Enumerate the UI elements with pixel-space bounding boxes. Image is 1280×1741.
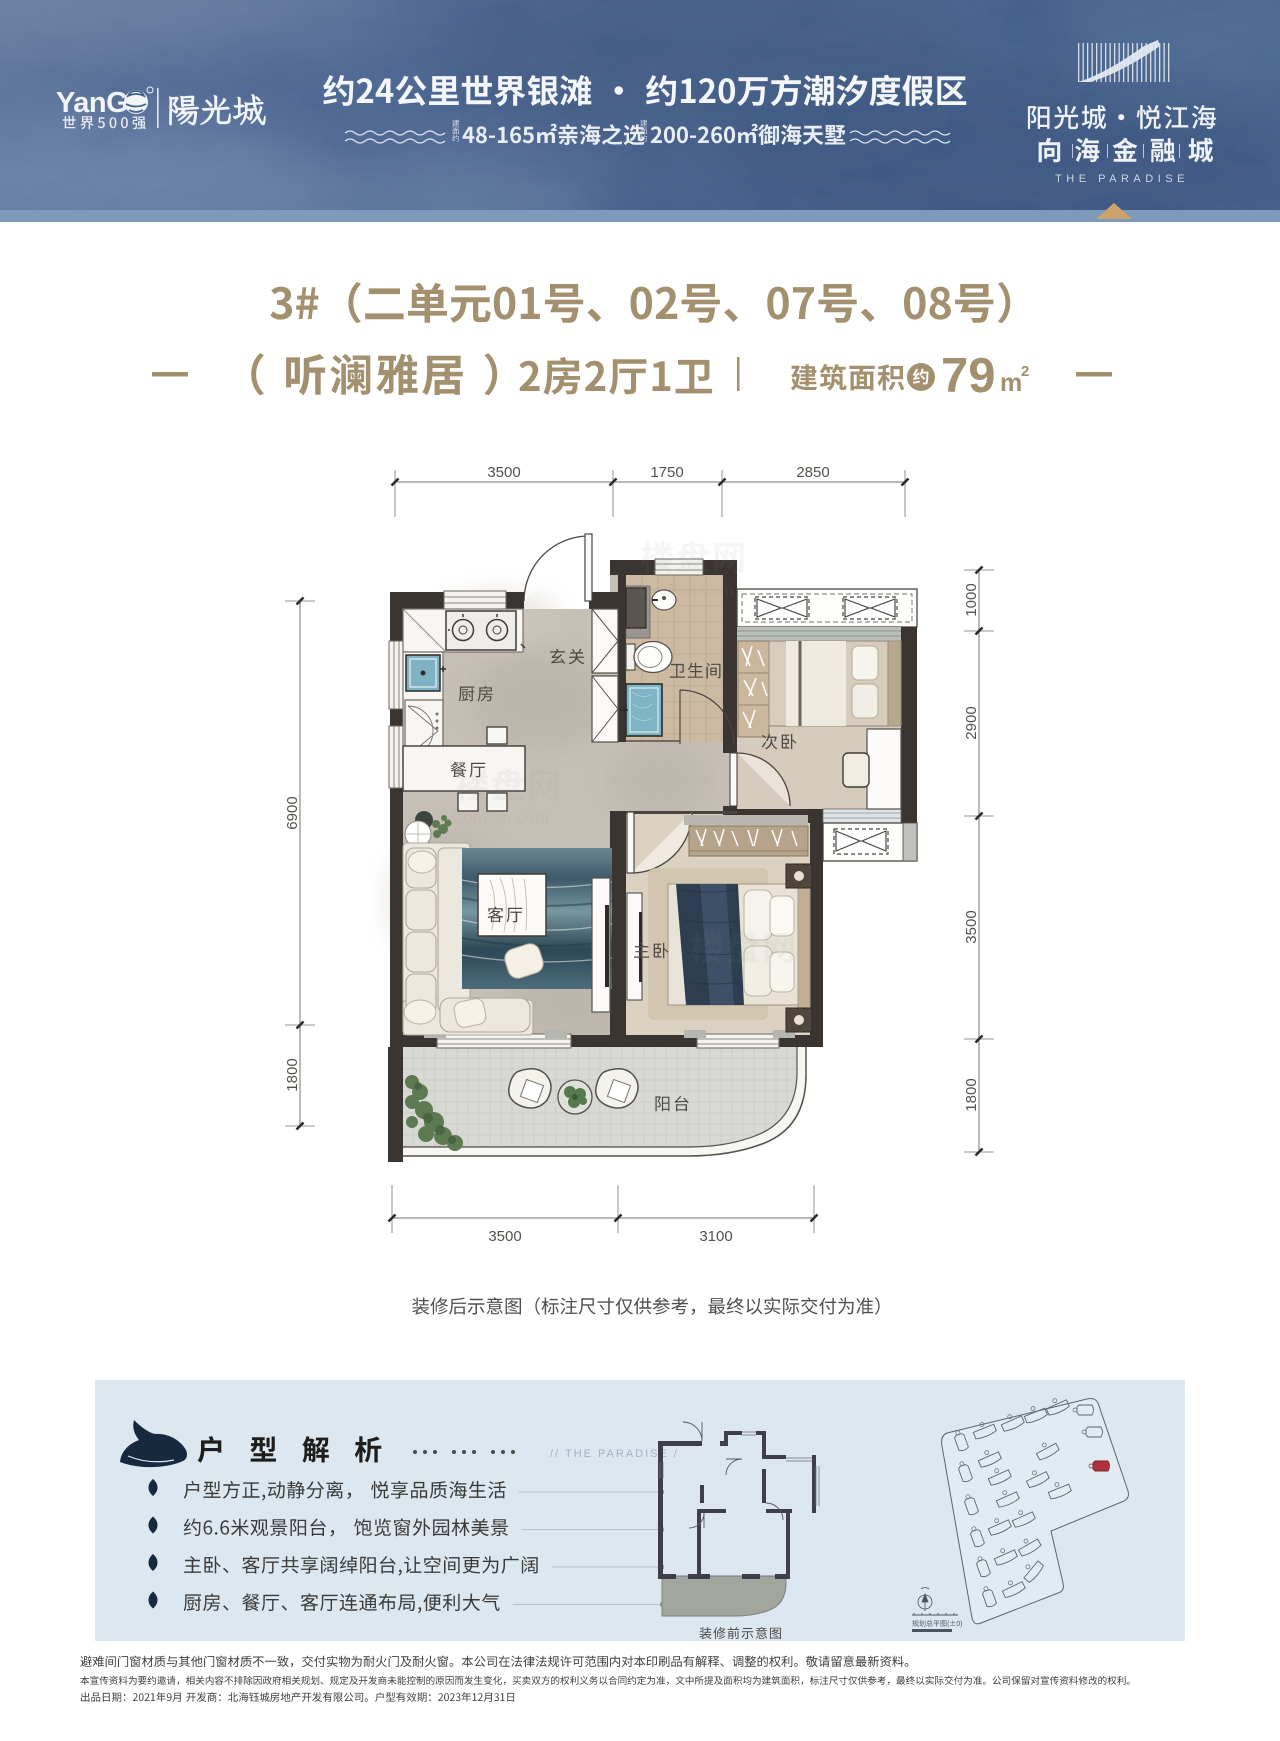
svg-text:2900: 2900 (963, 706, 980, 739)
svg-text:2850: 2850 (796, 464, 829, 481)
svg-text:LouPan.com: LouPan.com (638, 582, 734, 599)
svg-text:1750: 1750 (650, 464, 683, 481)
svg-text:1800: 1800 (963, 1078, 980, 1111)
svg-text:1000: 1000 (963, 583, 980, 616)
svg-text:79: 79 (941, 349, 996, 403)
svg-text:3500: 3500 (963, 910, 980, 943)
svg-text:6900: 6900 (284, 796, 301, 829)
svg-text:THE PARADISE: THE PARADISE (1055, 173, 1189, 185)
svg-text:3500: 3500 (488, 1228, 521, 1245)
svg-text:1800: 1800 (284, 1058, 301, 1091)
svg-text:3100: 3100 (699, 1228, 732, 1245)
svg-text:2: 2 (1021, 363, 1029, 380)
svg-text:LouPan.com: LouPan.com (453, 810, 549, 827)
svg-text:3500: 3500 (487, 464, 520, 481)
svg-text:m: m (1000, 369, 1022, 397)
svg-text:YanG: YanG (56, 87, 128, 119)
